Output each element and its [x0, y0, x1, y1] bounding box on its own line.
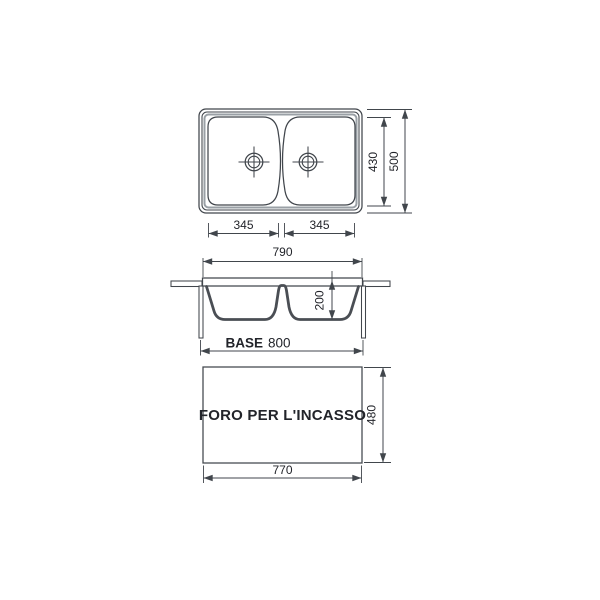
sink-technical-drawing: 430 500 345 345 790: [0, 0, 600, 600]
cabinet-side-right: [362, 286, 366, 338]
plan-view: 430 500 345 345: [199, 109, 412, 238]
cutout-label: FORO PER L'INCASSO: [199, 407, 366, 424]
dimension-overall-width: 790: [203, 245, 362, 277]
dimension-bowl-left-width: 345: [209, 218, 279, 238]
dimension-cutout-height: 480: [364, 368, 391, 463]
technical-drawing-sheet: 430 500 345 345 790: [0, 0, 600, 600]
dimension-cutout-width: 770: [204, 463, 362, 483]
section-view: 790 200 BASE800: [171, 245, 390, 356]
base-dimension-text: BASE800: [225, 336, 290, 351]
dimension-bowl-right-width: 345: [285, 218, 355, 238]
dimension-text: 430: [366, 152, 380, 172]
base-label: BASE: [225, 336, 263, 351]
dimension-text: 345: [309, 218, 329, 232]
cabinet-side-left: [199, 286, 203, 338]
base-value: 800: [268, 336, 291, 351]
cutout-view: FORO PER L'INCASSO 480 770: [199, 367, 391, 483]
dimension-text: 790: [272, 245, 292, 259]
dimension-text: 345: [233, 218, 253, 232]
dimension-base-width: BASE800: [201, 336, 364, 356]
bowl-section-profile: [207, 286, 359, 320]
countertop-right: [363, 281, 390, 287]
dimension-text: 770: [272, 463, 292, 477]
countertop-left: [171, 281, 202, 287]
dimension-text: 200: [313, 290, 327, 310]
dimension-text: 500: [387, 151, 401, 171]
dimension-text: 480: [365, 405, 379, 425]
